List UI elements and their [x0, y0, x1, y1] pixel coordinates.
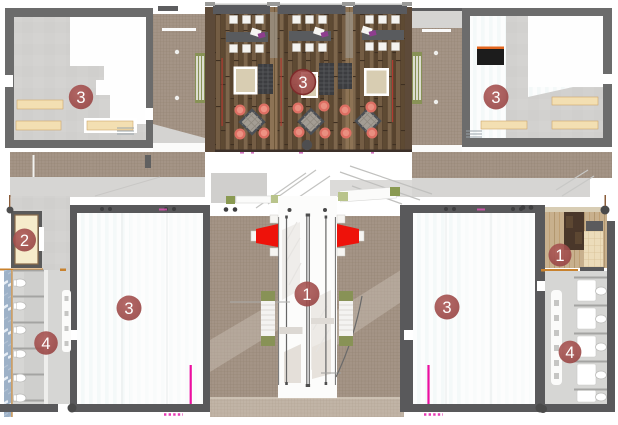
svg-text:3: 3: [298, 74, 307, 92]
svg-text:1: 1: [555, 247, 564, 265]
svg-text:4: 4: [41, 335, 50, 353]
svg-text:2: 2: [20, 232, 29, 250]
svg-text:3: 3: [76, 89, 85, 107]
svg-text:3: 3: [442, 299, 451, 317]
svg-text:4: 4: [565, 344, 574, 362]
svg-text:3: 3: [491, 89, 500, 107]
svg-text:1: 1: [302, 286, 311, 304]
svg-text:3: 3: [124, 300, 133, 318]
